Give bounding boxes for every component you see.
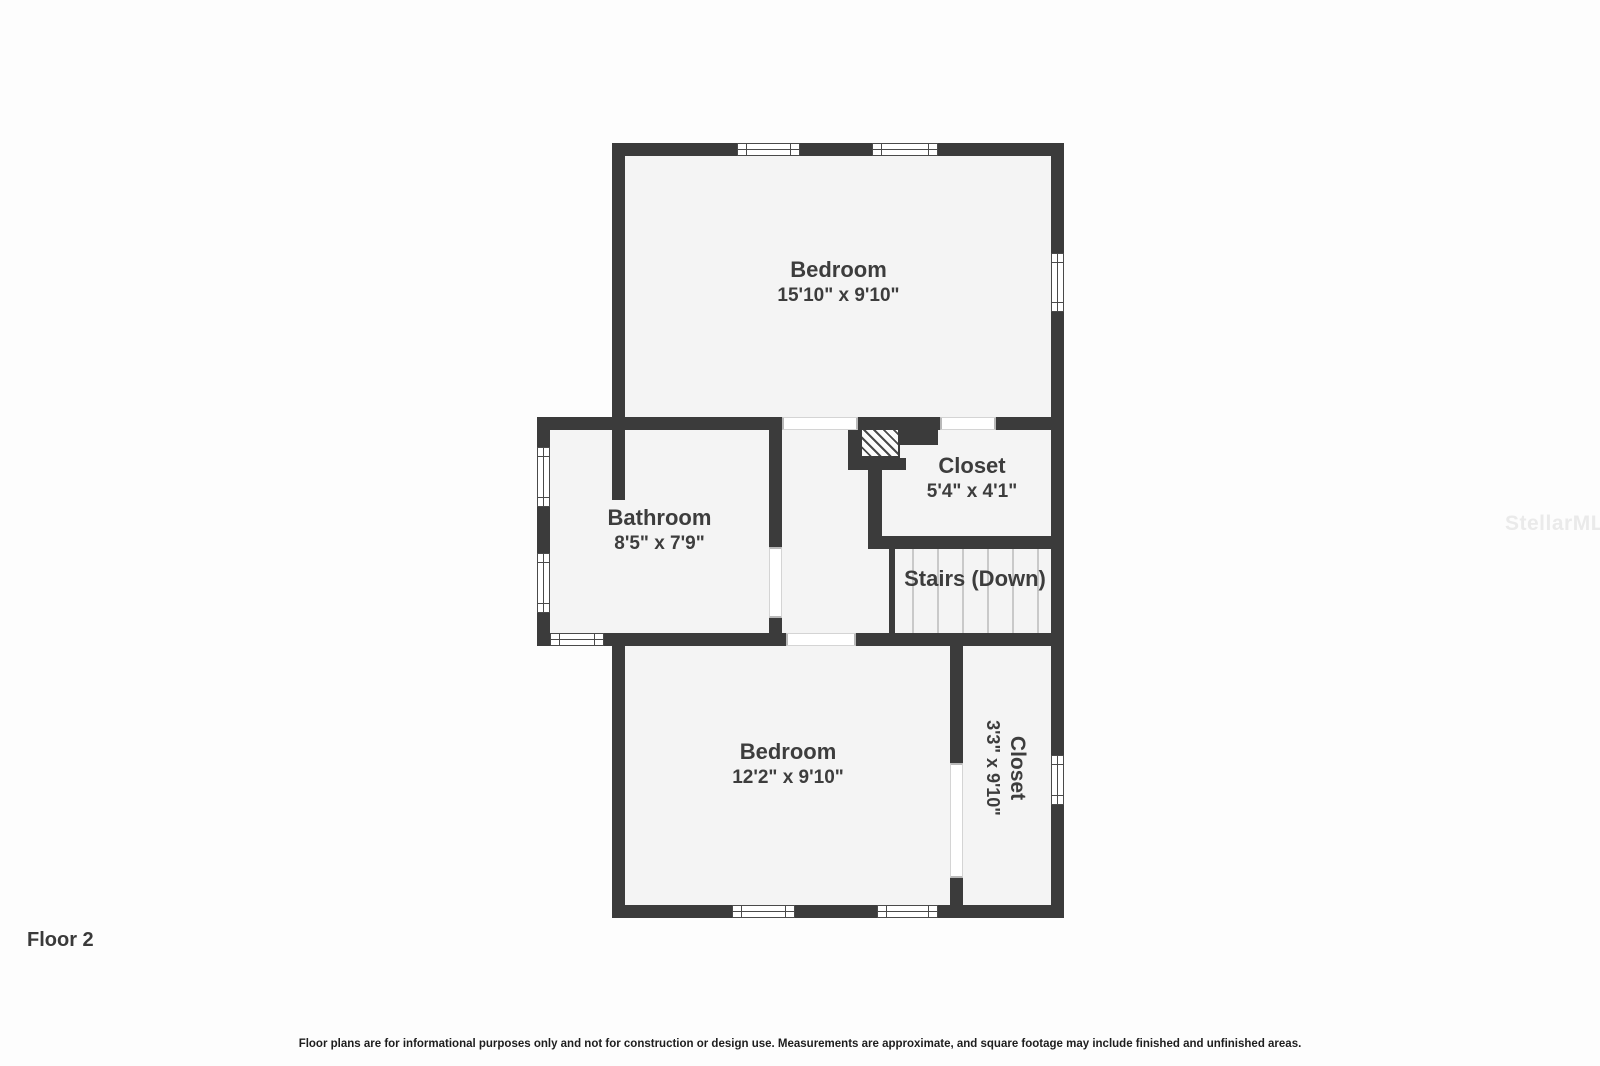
wall-bathroom-right-upper xyxy=(769,430,782,547)
window xyxy=(872,143,938,156)
wall-top xyxy=(612,143,1064,156)
wall-mid-band-left xyxy=(537,417,782,430)
room-dims: 12'2" x 9'10" xyxy=(626,766,950,790)
disclaimer-text: Floor plans are for informational purpos… xyxy=(0,1038,1600,1050)
wall-mid-band-right xyxy=(996,417,1064,430)
room-dims: 8'5" x 7'9" xyxy=(550,532,769,556)
room-dims: 3'3" x 9'10" xyxy=(981,690,1004,846)
room-label-stairs: Stairs (Down) xyxy=(880,565,1070,593)
room-label-closet-bottom: Closet 3'3" x 9'10" xyxy=(974,690,1030,846)
room-name: Stairs (Down) xyxy=(880,565,1070,593)
door-opening-bedroom-bottom xyxy=(786,633,856,646)
room-label-bathroom: Bathroom 8'5" x 7'9" xyxy=(550,504,769,555)
wall-bathroom-stub xyxy=(612,430,625,500)
door-opening-hall xyxy=(782,417,858,430)
window xyxy=(1051,253,1064,312)
door-opening-closet-bottom xyxy=(950,763,963,878)
room-name: Closet xyxy=(893,452,1051,480)
room-name: Bathroom xyxy=(550,504,769,532)
window xyxy=(537,553,550,613)
floor-plan-page: Bedroom 15'10" x 9'10" Bathroom 8'5" x 7… xyxy=(0,0,1600,1066)
floor-label: Floor 2 xyxy=(27,929,94,952)
window xyxy=(732,905,795,918)
room-label-closet-top: Closet 5'4" x 4'1" xyxy=(893,452,1051,503)
room-label-bedroom-bottom: Bedroom 12'2" x 9'10" xyxy=(626,738,950,789)
wall-divider-top xyxy=(950,633,963,763)
watermark: StellarMLS xyxy=(1505,512,1600,536)
wall-left-bottom-bedroom xyxy=(612,633,625,918)
room-dims: 5'4" x 4'1" xyxy=(893,480,1051,504)
room-dims: 15'10" x 9'10" xyxy=(626,284,1051,308)
door-opening-bathroom xyxy=(769,547,782,618)
window xyxy=(737,143,800,156)
window xyxy=(877,905,938,918)
room-name: Closet xyxy=(1004,690,1030,846)
wall-chimney-step xyxy=(898,430,938,445)
room-name: Bedroom xyxy=(626,256,1051,284)
room-name: Bedroom xyxy=(626,738,950,766)
door-opening-closet-top xyxy=(940,417,996,430)
window xyxy=(550,633,604,646)
wall-left-top-bedroom xyxy=(612,143,625,430)
room-label-bedroom-top: Bedroom 15'10" x 9'10" xyxy=(626,256,1051,307)
window xyxy=(537,447,550,507)
wall-stairs-top xyxy=(868,536,1064,549)
wall-bottom xyxy=(612,905,1064,918)
wall-divider-bottom xyxy=(950,878,963,918)
window xyxy=(1051,755,1064,805)
